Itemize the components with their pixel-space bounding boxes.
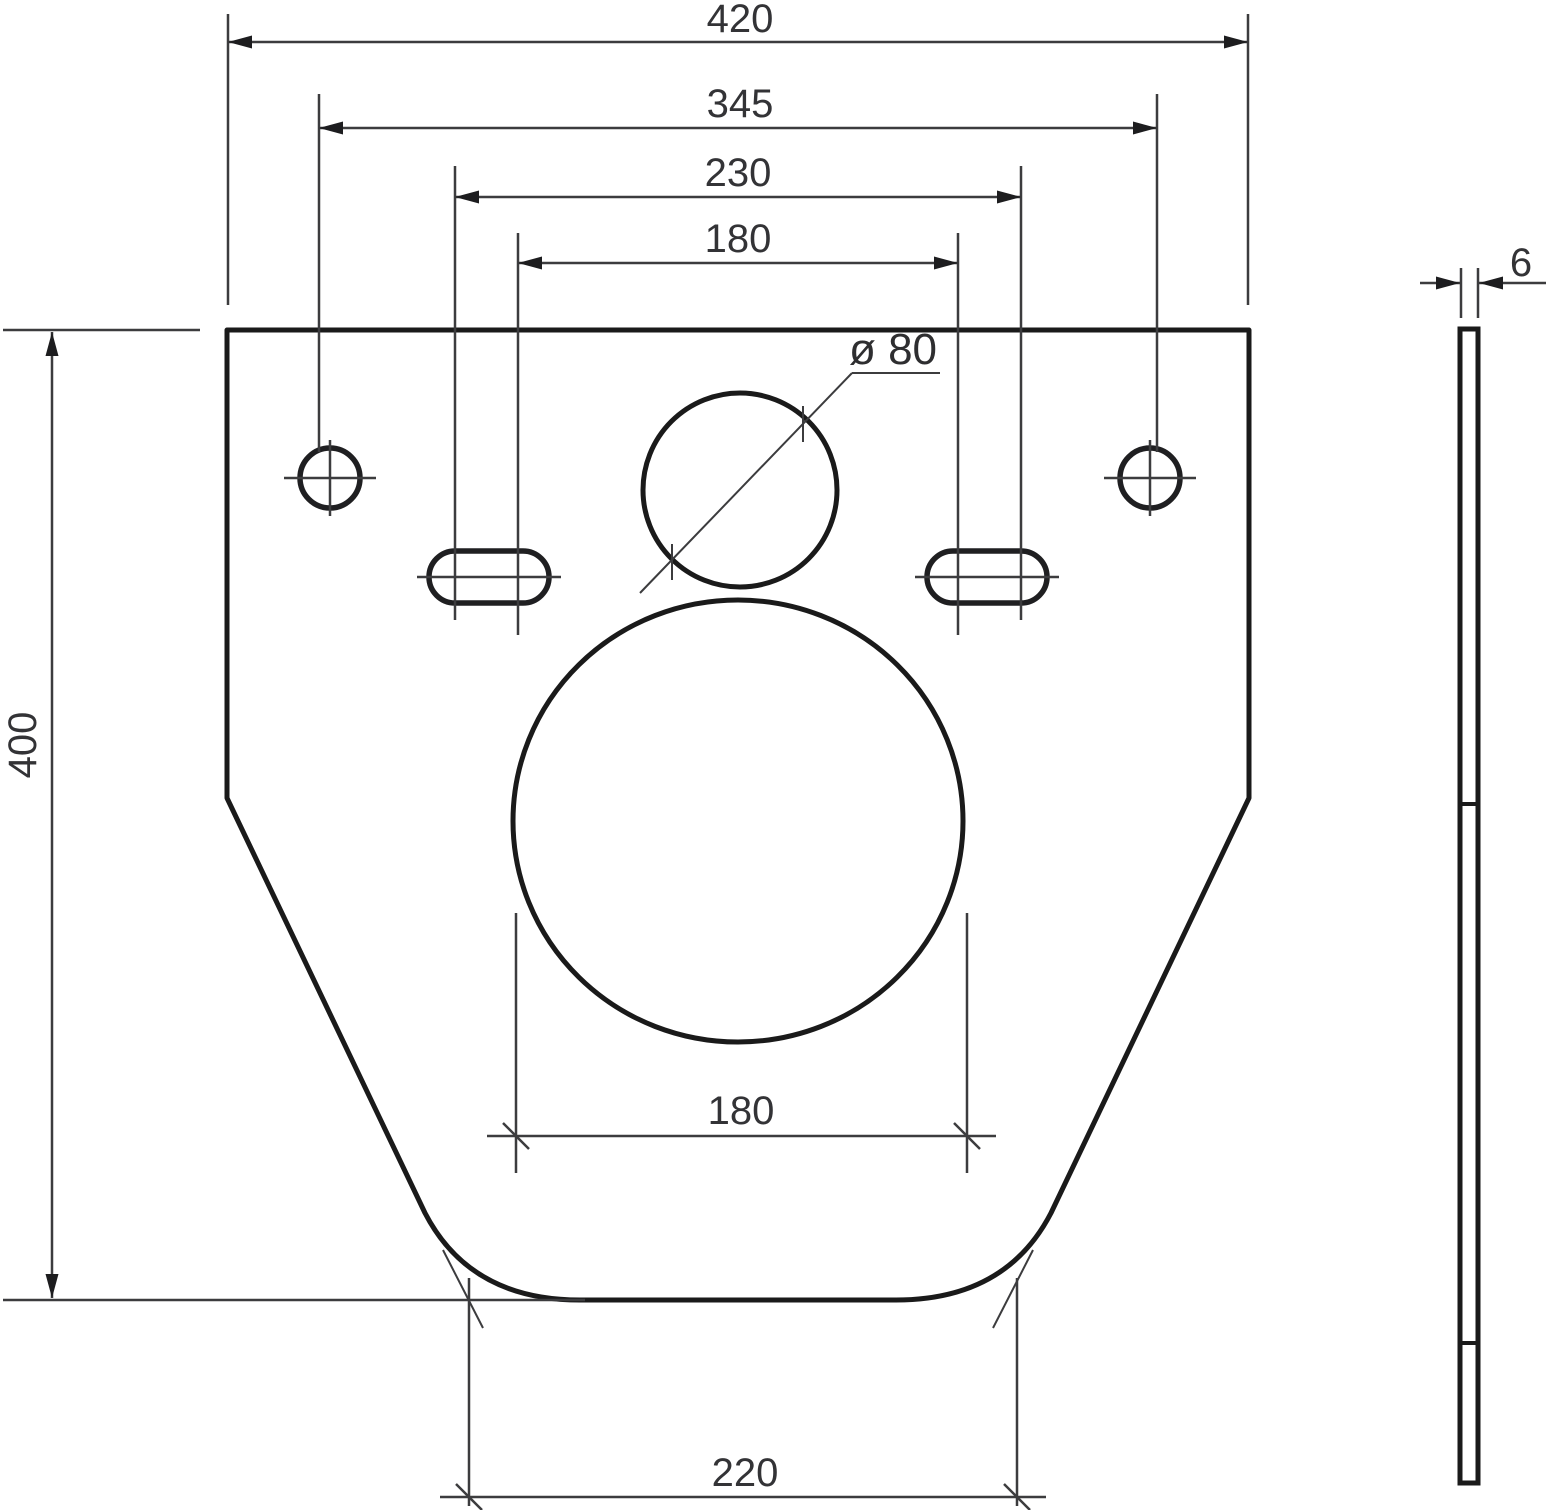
dim-pipe-diameter-label: ø 80 bbox=[849, 325, 937, 374]
dim-slot-spacing-outer-label: 230 bbox=[705, 151, 772, 195]
dimension-slot-spacing-inner: 180 bbox=[518, 217, 958, 635]
outlet-opening bbox=[513, 600, 963, 1042]
dimension-thickness: 6 bbox=[1420, 241, 1546, 318]
dimension-bottom-width: 220 bbox=[440, 1278, 1046, 1510]
dimension-overall-height: 400 bbox=[1, 330, 585, 1300]
dim-bottom-width-label: 220 bbox=[712, 1451, 779, 1495]
dim-slot-spacing-inner-label: 180 bbox=[705, 217, 772, 261]
dim-hole-spacing-label: 345 bbox=[707, 82, 774, 126]
side-view-profile bbox=[1460, 329, 1478, 1483]
dimension-hole-spacing: 345 bbox=[319, 82, 1157, 452]
dim-overall-width-label: 420 bbox=[707, 0, 774, 41]
mounting-slot-left bbox=[417, 551, 561, 603]
side-view bbox=[1460, 329, 1478, 1483]
plate-outline bbox=[227, 330, 1249, 1300]
dim-overall-height-label: 400 bbox=[1, 712, 45, 779]
mounting-hole-right bbox=[1104, 440, 1196, 516]
tangent-construction-lines bbox=[443, 1250, 1033, 1328]
dim-thickness-label: 6 bbox=[1510, 241, 1532, 285]
pipe-hole-leader: ø 80 bbox=[640, 325, 940, 593]
front-view: ø 80 bbox=[227, 325, 1249, 1300]
dim-outlet-width-label: 180 bbox=[708, 1089, 775, 1133]
mounting-slot-right bbox=[915, 551, 1059, 603]
mounting-hole-left bbox=[284, 440, 376, 516]
technical-drawing-canvas: ø 80 420 345 230 180 400 bbox=[0, 0, 1550, 1510]
